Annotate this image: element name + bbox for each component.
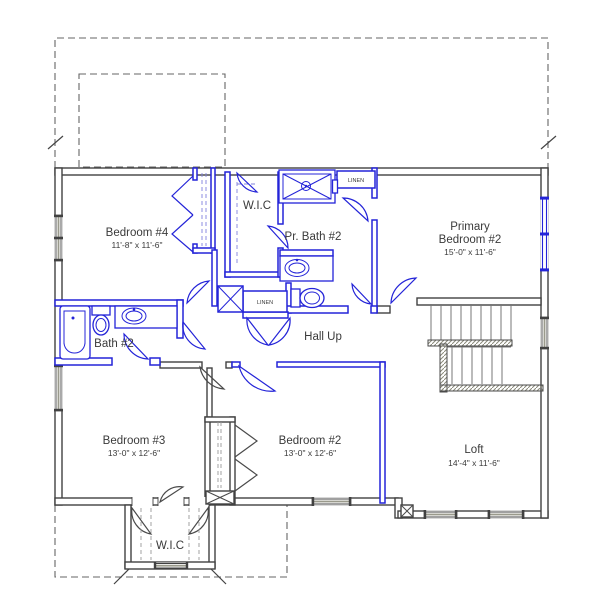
prbath2-label: Pr. Bath #2 [285, 231, 342, 243]
door-hall-west [183, 322, 205, 349]
window-primary-east [540, 197, 549, 272]
bedroom2-label: Bedroom #2 [279, 435, 342, 447]
toilet-icon-prbath [291, 289, 324, 308]
break-tick-left [48, 136, 63, 149]
bath2-label: Bath #2 [94, 338, 134, 350]
window-bedroom3-west [54, 365, 63, 412]
bedroom3-label: Bedroom #3 [103, 435, 166, 447]
shower-icon [279, 170, 338, 203]
floor-plan-drawing: LINEN LINEN [0, 0, 600, 600]
stair-treads-lower [447, 347, 511, 384]
linen-hall-label: LINEN [257, 300, 273, 306]
sink-icon-prbath [280, 256, 333, 281]
primary-bedroom2-dims: 15'-0" x 11'-6" [444, 247, 496, 257]
chase-box-hall [218, 286, 243, 312]
linen-closet-upper: LINEN [337, 171, 375, 188]
door-hall-double-left [247, 318, 268, 345]
bedroom4-label: Bedroom #4 [106, 227, 169, 239]
window-loft-south-2 [488, 510, 525, 519]
bifold-bedroom4-closet-2 [172, 215, 193, 252]
wic-upper-label: W.I.C [243, 200, 271, 212]
primary-bedroom2-label-2: Bedroom #2 [439, 234, 502, 246]
door-bedroom4 [187, 281, 209, 303]
window-bedroom4-west [54, 215, 63, 262]
bathtub-icon-bath2 [60, 306, 90, 359]
door-wic-upper [237, 173, 257, 192]
window-wic-south [154, 562, 188, 569]
bedroom4-dims: 11'-8" x 11'-6" [111, 240, 162, 250]
stair-rail-bottom [440, 385, 543, 391]
interior-walls-dark [160, 298, 541, 505]
bifold-bedroom4-closet-1 [172, 176, 193, 215]
bifold-bedroom2-closet-2 [235, 459, 257, 491]
stair-treads-upper [431, 304, 511, 340]
sink-icon-bath2 [115, 306, 177, 328]
door-bedroom2 [239, 366, 275, 391]
window-stair-east [540, 317, 549, 350]
hall-label: Hall Up [304, 331, 342, 343]
break-tick-wic-right [211, 569, 226, 584]
bifold-bedroom2-closet-1 [235, 425, 257, 457]
window-bedroom2-south [312, 497, 352, 506]
door-hall-double-right [269, 318, 290, 345]
door-primary-bedroom [391, 278, 416, 303]
chase-box-loft [401, 505, 413, 517]
bedroom2-dims: 13'-0" x 12'-6" [284, 448, 336, 458]
loft-dims: 14'-4" x 11'-6" [448, 458, 500, 468]
window-loft-south-1 [424, 510, 458, 519]
primary-bedroom2-label-1: Primary [450, 221, 490, 233]
chase-box-closet [206, 491, 234, 504]
staircase [428, 304, 543, 392]
linen-closet-hall: LINEN [243, 291, 287, 312]
door-linen-upper [343, 198, 368, 221]
bedroom3-dims: 13'-0" x 12'-6" [108, 448, 160, 458]
floor-plan-page: LINEN LINEN [0, 0, 600, 600]
linen-upper-label: LINEN [348, 178, 364, 184]
loft-label: Loft [464, 444, 484, 456]
door-prbath-entry [352, 284, 371, 304]
wic-lower-label: W.I.C [156, 540, 184, 552]
toilet-icon-bath2 [92, 306, 110, 335]
